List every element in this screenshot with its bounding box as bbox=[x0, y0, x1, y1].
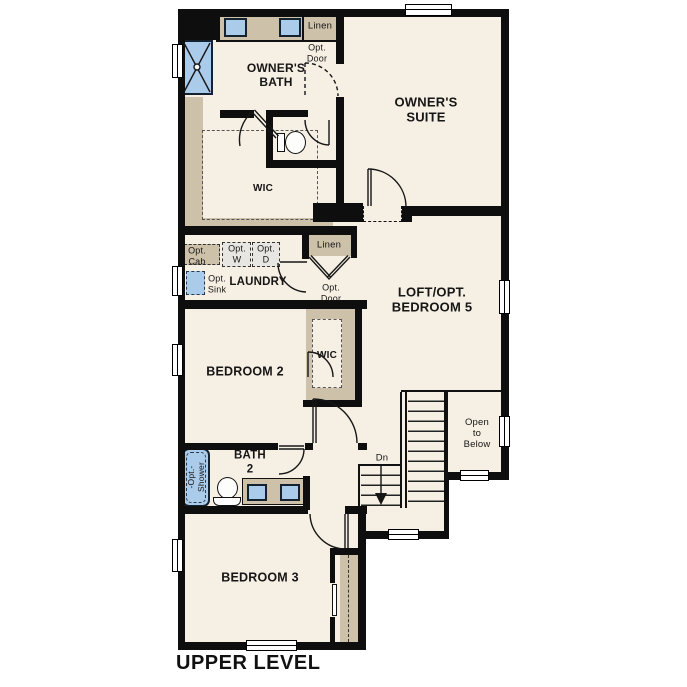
door-arc-owners-suite bbox=[368, 169, 406, 207]
room-label-bedroom3: BEDROOM 3 bbox=[221, 571, 299, 586]
floor-plan-upper-level: OWNER'S BATH OWNER'S SUITE WIC LAUNDRY L… bbox=[0, 0, 687, 687]
label-linen-upper: Linen bbox=[308, 20, 332, 31]
door-leaf-bath-wic bbox=[252, 110, 279, 138]
room-label-owners-wic: WIC bbox=[253, 183, 273, 195]
plan-title: UPPER LEVEL bbox=[176, 652, 320, 675]
door-leaf-bath2 bbox=[279, 446, 304, 449]
door-arc-bath2 bbox=[279, 449, 304, 474]
room-label-bedroom2: BEDROOM 2 bbox=[206, 365, 284, 380]
label-opt-washer: Opt. W bbox=[228, 243, 246, 264]
shower-drain bbox=[194, 64, 200, 70]
door-swing-overlay bbox=[0, 0, 687, 687]
door-arc-opt-upper bbox=[305, 63, 338, 96]
door-leaf-bedroom3 bbox=[345, 514, 348, 549]
label-opt-shower: -Opt.- Shower bbox=[186, 462, 206, 492]
label-opt-door-hall: Opt. Door bbox=[321, 282, 341, 303]
door-arc-bedroom2 bbox=[313, 399, 357, 443]
label-opt-dryer: Opt. D bbox=[257, 243, 275, 264]
room-label-owners-suite: OWNER'S SUITE bbox=[395, 95, 458, 126]
label-stairs-down: Dn bbox=[376, 452, 389, 463]
door-opt-hall-v bbox=[309, 256, 350, 280]
room-label-bedroom2-wic: WIC bbox=[317, 350, 337, 362]
label-open-to-below: Open to Below bbox=[464, 417, 491, 451]
stairs-down-arrow-head bbox=[375, 493, 387, 505]
label-opt-cab: Opt. Cab bbox=[188, 245, 206, 266]
door-leaf-bedroom2 bbox=[313, 399, 316, 443]
door-leaf-owners-suite bbox=[368, 169, 371, 206]
door-arc-toilet-room bbox=[305, 120, 329, 145]
room-label-owners-bath: OWNER'S BATH bbox=[247, 61, 305, 89]
room-label-laundry: LAUNDRY bbox=[229, 276, 286, 290]
label-linen-hall: Linen bbox=[317, 239, 341, 250]
label-opt-sink: Opt. Sink bbox=[208, 273, 226, 294]
door-arc-bath-wic bbox=[239, 112, 252, 146]
room-label-loft: LOFT/OPT. BEDROOM 5 bbox=[392, 285, 473, 316]
door-arc-bedroom3 bbox=[310, 514, 345, 549]
room-label-bath2: BATH 2 bbox=[234, 449, 266, 476]
label-opt-door-upper: Opt. Door bbox=[307, 42, 327, 63]
